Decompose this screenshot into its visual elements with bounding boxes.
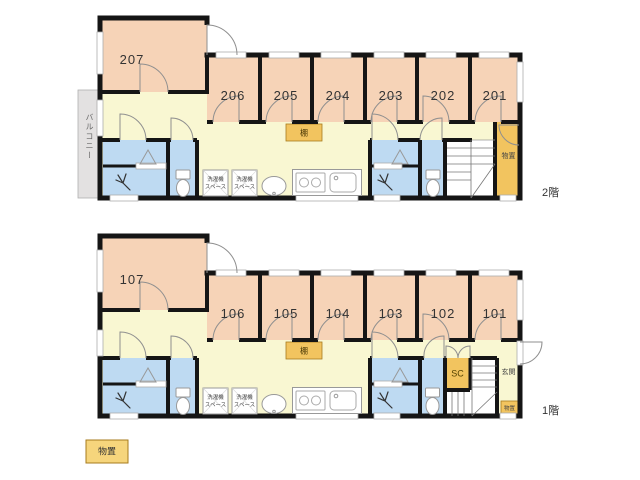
svg-text:洗濯機: 洗濯機	[207, 393, 224, 401]
svg-text:スペース: スペース	[234, 402, 255, 409]
floorplan-svg: 洗濯機 スペース 洗濯機 スペース 207 206 205 204 203 20…	[0, 0, 640, 480]
room-206-label: 206	[221, 88, 246, 103]
room-105-label: 105	[274, 306, 299, 321]
svg-text:スペース: スペース	[234, 184, 255, 191]
svg-text:スペース: スペース	[205, 184, 226, 191]
f2-washbasin-icon	[262, 177, 286, 196]
floor1-plan: 洗濯機 スペース 洗濯機 スペース 107 106 105 104 103 10…	[97, 234, 559, 420]
room-106-label: 106	[221, 306, 246, 321]
room-102-label: 102	[431, 306, 456, 321]
room-101-label: 101	[483, 306, 508, 321]
svg-text:スペース: スペース	[205, 402, 226, 409]
room-204-label: 204	[326, 88, 351, 103]
floor2-plan: 洗濯機 スペース 洗濯機 スペース 207 206 205 204 203 20…	[78, 16, 559, 202]
f2-toilet-right-icon	[426, 170, 440, 197]
room-103-label: 103	[379, 306, 404, 321]
storage-legend: 物置	[86, 440, 128, 463]
room-202-label: 202	[431, 88, 456, 103]
floorplan-canvas: 洗濯機 スペース 洗濯機 スペース 207 206 205 204 203 20…	[0, 0, 640, 480]
floor1-label: 1階	[542, 403, 559, 417]
room-104-label: 104	[326, 306, 351, 321]
svg-text:洗濯機: 洗濯機	[207, 175, 224, 183]
room-107-label: 107	[120, 272, 145, 287]
room-107	[100, 236, 207, 310]
f2-shelf-label: 棚	[300, 128, 308, 138]
f2-kitchen-icon	[293, 170, 362, 196]
f1-toilet-left-icon	[176, 388, 190, 415]
room-205-label: 205	[274, 88, 299, 103]
f2-laundry-space-1: 洗濯機 スペース	[203, 170, 228, 196]
f2-laundry-space-2: 洗濯機 スペース	[232, 170, 257, 196]
room-201-label: 201	[483, 88, 508, 103]
storage-legend-label: 物置	[98, 446, 116, 457]
f1-laundry-space-2: 洗濯機 スペース	[232, 388, 257, 414]
svg-text:洗濯機: 洗濯機	[236, 393, 253, 401]
floor2-label: 2階	[542, 185, 559, 199]
f1-entrance-label: 玄関	[502, 367, 516, 376]
f1-kitchen-icon	[293, 388, 362, 414]
f1-washbasin-icon	[262, 395, 286, 414]
room-207	[100, 18, 207, 92]
f1-shoe-closet-label: SC	[451, 369, 464, 379]
f2-storage-label: 物置	[502, 151, 516, 160]
room-203-label: 203	[379, 88, 404, 103]
svg-text:洗濯機: 洗濯機	[236, 175, 253, 183]
f1-shelf-label: 棚	[300, 346, 308, 356]
f1-entrance-storage-label: 物置	[504, 404, 516, 412]
f1-laundry-space-1: 洗濯機 スペース	[203, 388, 228, 414]
f2-toilet-left-icon	[176, 170, 190, 197]
room-207-label: 207	[120, 52, 145, 67]
f1-toilet-right-icon	[426, 388, 440, 415]
balcony-label: バルコニー	[84, 113, 95, 161]
